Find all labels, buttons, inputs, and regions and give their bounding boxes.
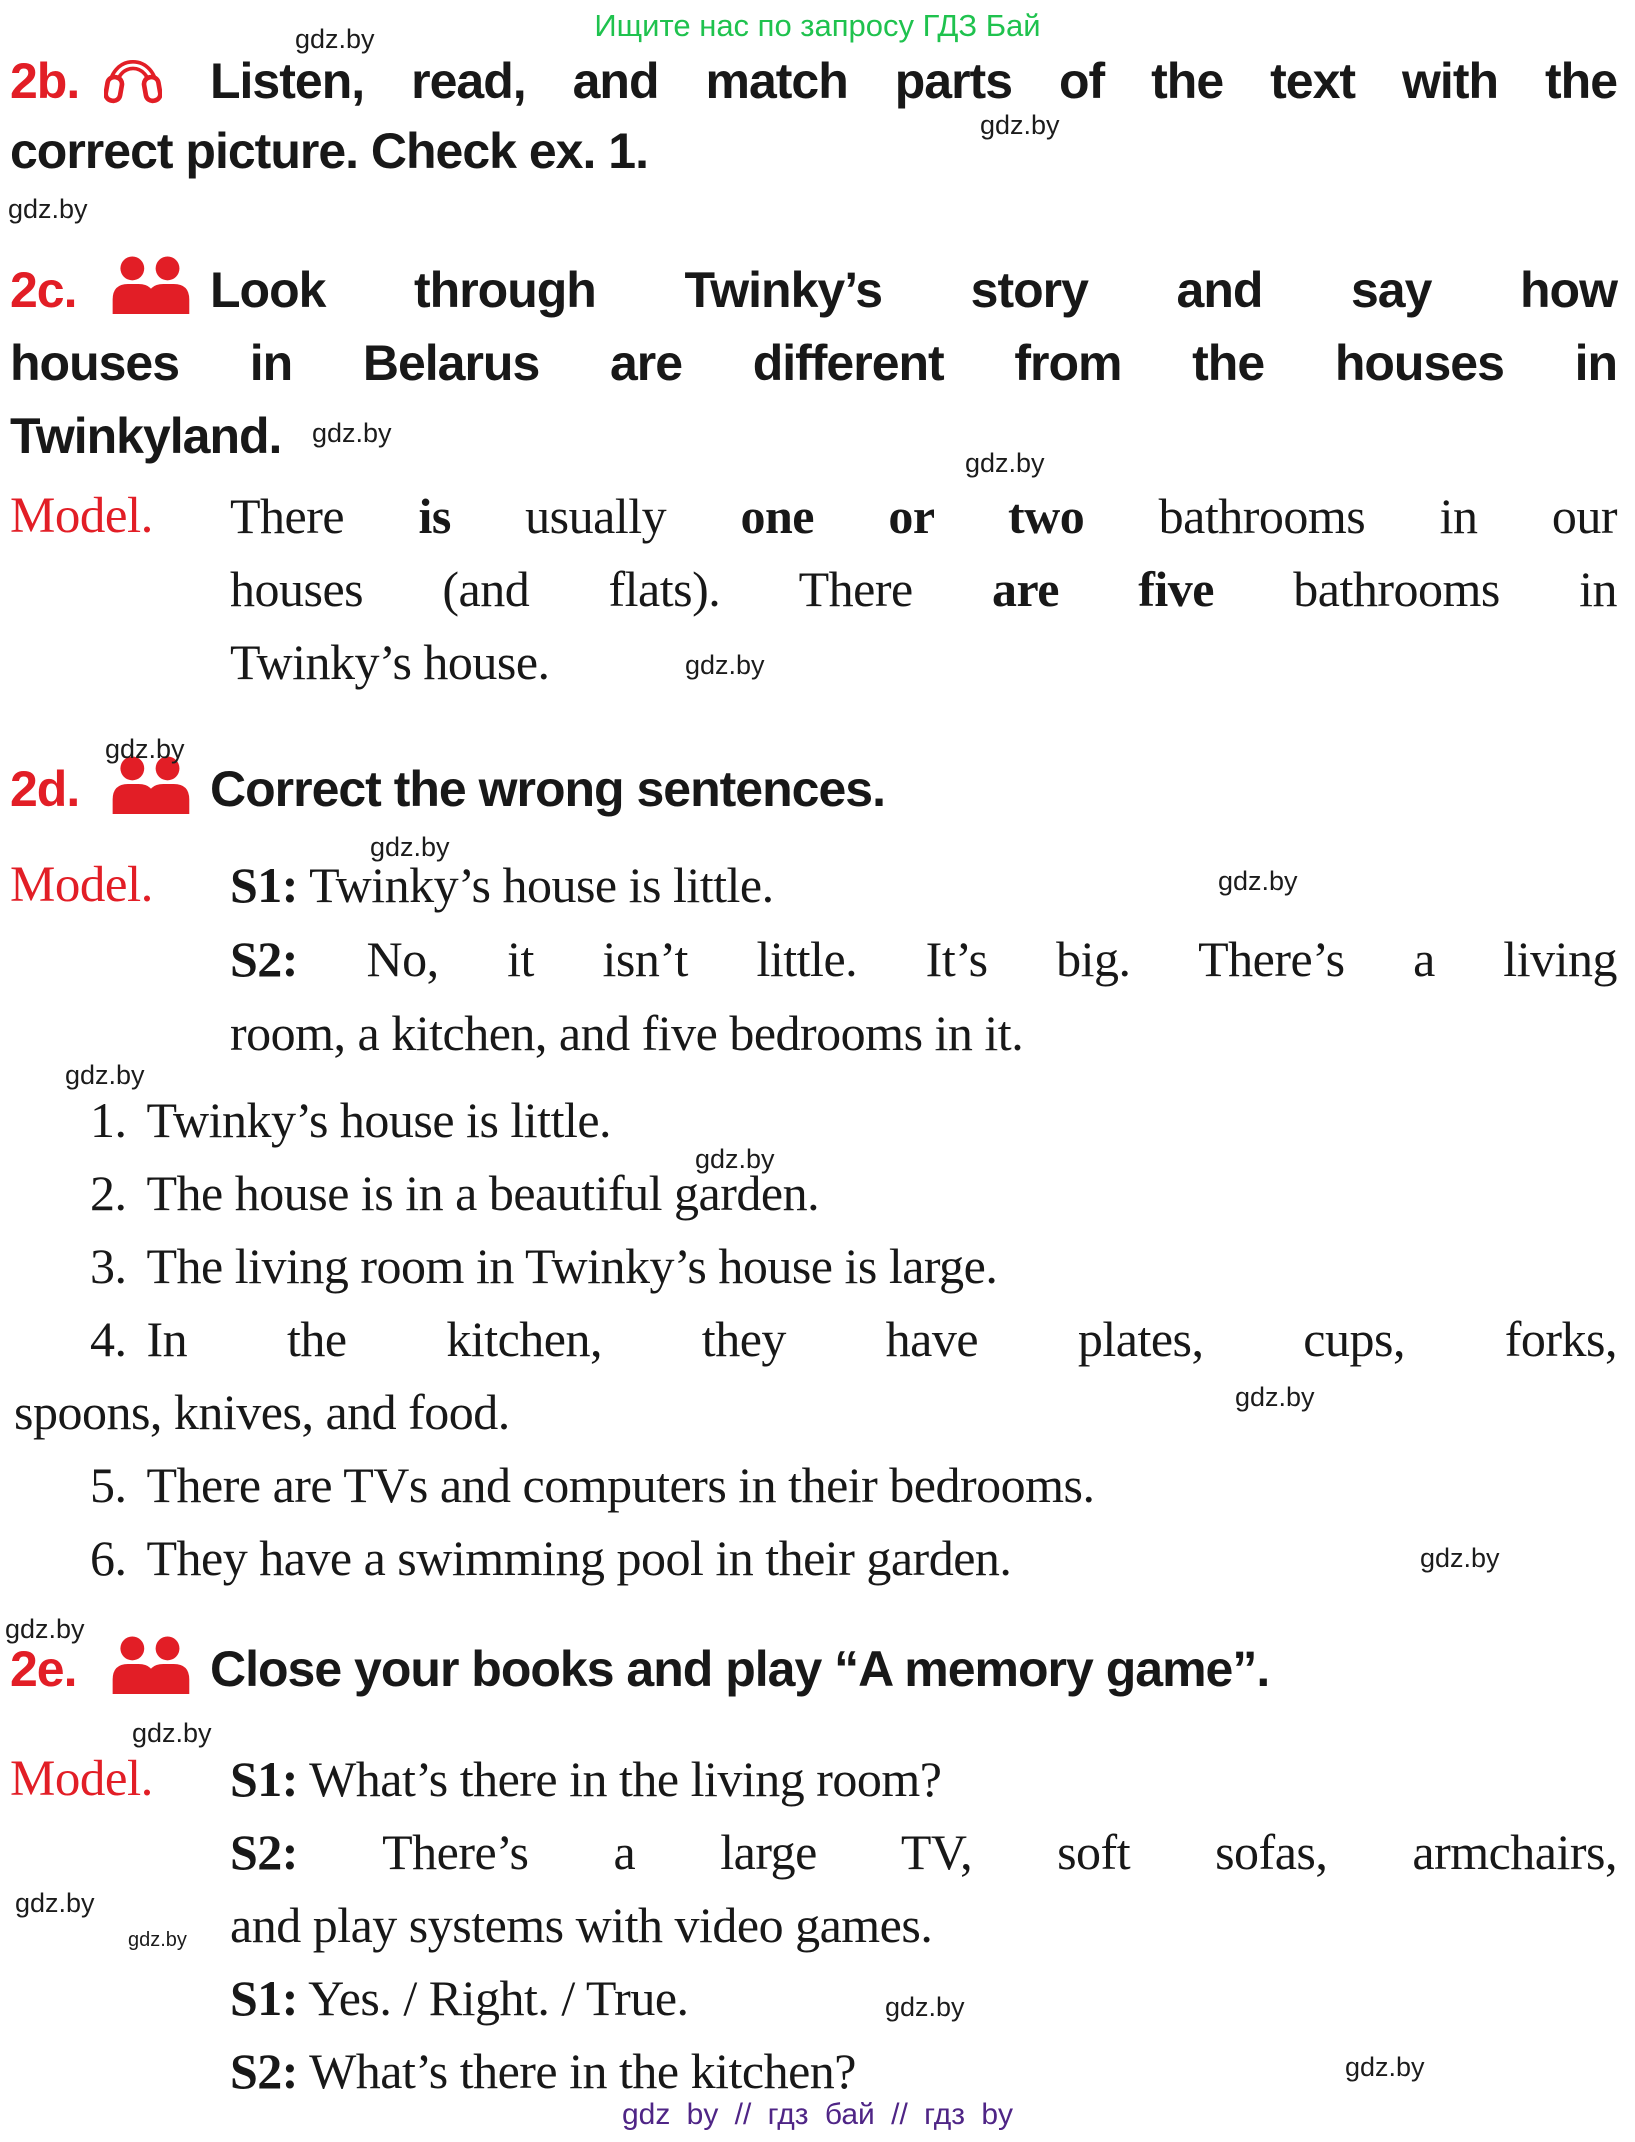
section-2e: 2e. Close your books and play “A memory … — [0, 1634, 1635, 1704]
model-2d-line: S1: Twinky’s house is little. — [0, 848, 1635, 922]
exercise-2e-text-line: Close your books and play “A memory game… — [0, 1634, 1635, 1704]
model-2e-line: S1: What’s there in the living room? — [0, 1743, 1635, 1816]
model-2c-line: There is usually one or two bathrooms in… — [0, 480, 1635, 553]
gdz-watermark: gdz.by — [15, 1890, 95, 1917]
list-item: 6.They have a swimming pool in their gar… — [0, 1522, 1635, 1595]
gdz-watermark: gdz.by — [965, 450, 1045, 477]
gdz-watermark: gdz.by — [685, 652, 765, 679]
exercise-2b-label: 2b. — [10, 46, 79, 116]
model-2e-line: and play systems with video games. — [0, 1889, 1635, 1962]
gdz-watermark: gdz.by — [128, 1930, 187, 1950]
model-label: Model. — [10, 480, 153, 553]
model-2d: Model. S1: Twinky’s house is little. S2:… — [0, 848, 1635, 1070]
gdz-watermark: gdz.by — [1235, 1384, 1315, 1411]
list-item: 4.In the kitchen, they have plates, cups… — [0, 1303, 1635, 1376]
model-2d-line: room, a kitchen, and five bedrooms in it… — [0, 996, 1635, 1070]
gdz-watermark: gdz.by — [370, 834, 450, 861]
model-2c-line: houses (and flats). There are five bathr… — [0, 553, 1635, 626]
model-2d-line: S2: No, it isn’t little. It’s big. There… — [0, 922, 1635, 996]
list-item: 5.There are TVs and computers in their b… — [0, 1449, 1635, 1522]
list-item: 2.The house is in a beautiful garden. — [0, 1157, 1635, 1230]
exercise-2e-label: 2e. — [10, 1634, 77, 1704]
headphones-icon — [104, 48, 162, 122]
gdz-watermark: gdz.by — [105, 736, 185, 763]
section-2c: 2c. Look through Twinky’s story and say … — [0, 254, 1635, 473]
list-item-wrap: spoons, knives, and food. — [0, 1376, 1635, 1449]
model-label: Model. — [10, 1743, 153, 1816]
list-item: 3.The living room in Twinky’s house is l… — [0, 1230, 1635, 1303]
model-2c: Model. There is usually one or two bathr… — [0, 480, 1635, 699]
textbook-page: Ищите нас по запросу ГДЗ Бай 2b. Listen,… — [0, 0, 1635, 2142]
exercise-2c-text-line: Look through Twinky’s story and say how — [0, 254, 1635, 327]
people-icon — [108, 756, 196, 832]
section-2b: 2b. Listen, read, and match parts of the… — [0, 46, 1635, 186]
gdz-watermark: gdz.by — [1420, 1545, 1500, 1572]
exercise-2b-text-line: correct picture. Check ex. 1. — [0, 116, 1635, 186]
exercise-2d-text-line: Correct the wrong sentences. — [0, 754, 1635, 824]
exercise-2c-text-line: houses in Belarus are different from the… — [0, 327, 1635, 400]
top-banner-text: Ищите нас по запросу ГДЗ Бай — [0, 8, 1635, 44]
exercise-2c-text-line: Twinkyland. — [0, 400, 1635, 473]
exercise-2c-label: 2c. — [10, 254, 77, 327]
model-2c-line: Twinky’s house. — [0, 626, 1635, 699]
gdz-watermark: gdz.by — [8, 196, 88, 223]
footer-links-text[interactable]: gdz by // гдз бай // гдз by — [0, 2098, 1635, 2132]
gdz-watermark: gdz.by — [65, 1062, 145, 1089]
people-icon — [108, 1636, 196, 1712]
model-label: Model. — [10, 848, 153, 922]
gdz-watermark: gdz.by — [1345, 2054, 1425, 2081]
people-icon — [108, 256, 196, 334]
sentence-list: 1.Twinky’s house is little. 2.The house … — [0, 1084, 1635, 1595]
gdz-watermark: gdz.by — [885, 1994, 965, 2021]
gdz-watermark: gdz.by — [1218, 868, 1298, 895]
exercise-2d-label: 2d. — [10, 754, 79, 824]
model-2e-line: S1: Yes. / Right. / True. — [0, 1962, 1635, 2035]
section-2d: 2d. Correct the wrong sentences. — [0, 754, 1635, 824]
gdz-watermark: gdz.by — [5, 1616, 85, 1643]
list-item: 1.Twinky’s house is little. — [0, 1084, 1635, 1157]
exercise-2b-text-line: Listen, read, and match parts of the tex… — [0, 46, 1635, 116]
model-2e-line: S2: There’s a large TV, soft sofas, armc… — [0, 1816, 1635, 1889]
gdz-watermark: gdz.by — [312, 420, 392, 447]
gdz-watermark: gdz.by — [695, 1146, 775, 1173]
gdz-watermark: gdz.by — [980, 112, 1060, 139]
gdz-watermark: gdz.by — [132, 1720, 212, 1747]
gdz-watermark: gdz.by — [295, 26, 375, 53]
